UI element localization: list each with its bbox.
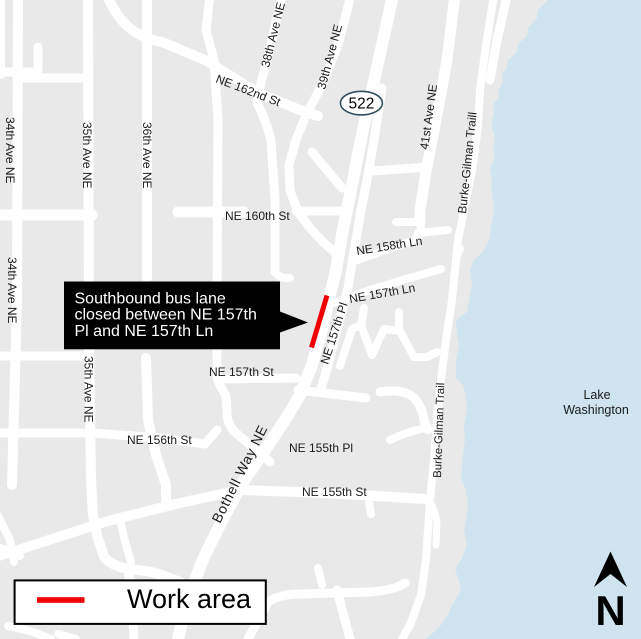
svg-text:NE 155th St: NE 155th St xyxy=(302,485,367,499)
svg-text:Work area: Work area xyxy=(127,584,252,614)
svg-text:35th Ave NE: 35th Ave NE xyxy=(80,122,94,189)
svg-text:35th Ave NE: 35th Ave NE xyxy=(82,356,96,423)
svg-text:NE 157th St: NE 157th St xyxy=(209,365,274,379)
svg-text:Lake: Lake xyxy=(583,388,610,402)
svg-text:NE 160th St: NE 160th St xyxy=(225,209,290,223)
svg-text:NE 156th St: NE 156th St xyxy=(127,433,192,447)
svg-text:Southbound bus lane: Southbound bus lane xyxy=(75,290,226,307)
svg-text:N: N xyxy=(595,587,625,634)
svg-text:36th Ave NE: 36th Ave NE xyxy=(140,122,154,189)
svg-text:closed between NE 157th: closed between NE 157th xyxy=(75,307,257,324)
svg-text:34th Ave NE: 34th Ave NE xyxy=(5,257,19,324)
svg-text:34th Ave NE: 34th Ave NE xyxy=(3,117,17,184)
svg-text:NE 155th Pl: NE 155th Pl xyxy=(289,441,353,455)
svg-text:Pl and NE 157th Ln: Pl and NE 157th Ln xyxy=(75,323,214,340)
svg-text:522: 522 xyxy=(348,96,374,113)
svg-text:Washington: Washington xyxy=(563,403,629,417)
